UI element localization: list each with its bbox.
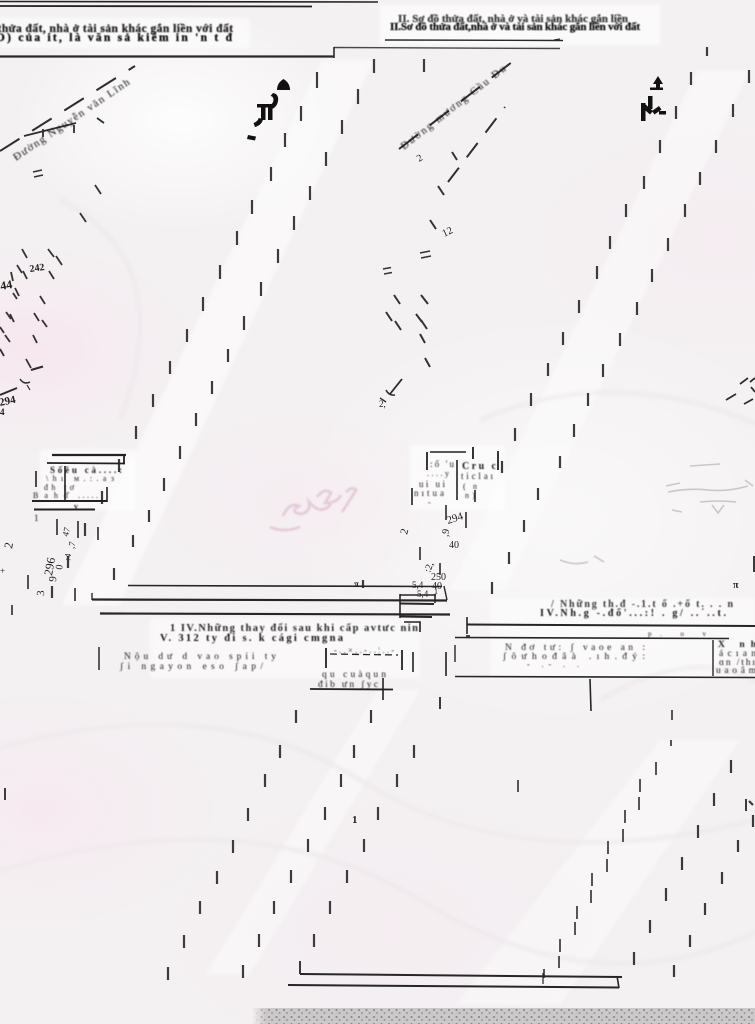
- svg-text:Đường mương Cầu Đu: Đường mương Cầu Đu: [399, 63, 509, 152]
- svg-text:294: 294: [445, 510, 465, 527]
- svg-text:2: 2: [398, 527, 411, 535]
- svg-text:qu cuàqun: qu cuàqun: [322, 670, 386, 680]
- svg-text:12: 12: [441, 225, 455, 239]
- svg-text:242: 242: [29, 262, 45, 275]
- svg-text::4: :4: [62, 552, 73, 561]
- svg-text:47: 47: [60, 526, 72, 538]
- svg-text:40: 40: [449, 540, 459, 551]
- svg-text::ố 'u: :ố 'u: [430, 459, 455, 469]
- svg-text:2: 2: [1, 541, 16, 549]
- svg-text:3: 3: [35, 590, 47, 596]
- svg-text:Nộu dư d vao spii ty: Nộu dư d vao spii ty: [124, 652, 276, 662]
- svg-text:,7: ,7: [66, 540, 77, 549]
- svg-text:Đường Nguyễn văn Lĩnh: Đường Nguyễn văn Lĩnh: [11, 76, 133, 163]
- svg-text:,9: ,9: [440, 528, 452, 537]
- svg-text:5,4: 5,4: [417, 589, 429, 599]
- svg-text:ʃôưhođâà .ıh.đý:: ʃôưhođâà .ıh.đý:: [502, 652, 645, 662]
- svg-text:2,: 2,: [379, 399, 386, 409]
- svg-text:4: 4: [0, 407, 5, 417]
- svg-text:44: 44: [0, 277, 13, 293]
- svg-text:5,4: 5,4: [412, 580, 424, 590]
- svg-text:2: 2: [415, 153, 425, 165]
- svg-text:ʃi ngayon eso ʃap/: ʃi ngayon eso ʃap/: [119, 662, 263, 672]
- svg-text:+: +: [0, 566, 5, 576]
- svg-text:296: 296: [41, 556, 58, 576]
- svg-text:π: π: [733, 580, 739, 591]
- svg-text:-: -: [428, 498, 431, 507]
- svg-text:1: 1: [352, 814, 358, 826]
- svg-text:v: v: [74, 502, 78, 511]
- svg-text:π: π: [354, 579, 359, 589]
- svg-text:II.Sơ đồ thửa đất,nhà ở và tài: II.Sơ đồ thửa đất,nhà ở và tài sản khác …: [390, 21, 640, 33]
- svg-text:1: 1: [34, 513, 39, 523]
- svg-text:9: 9: [47, 575, 59, 582]
